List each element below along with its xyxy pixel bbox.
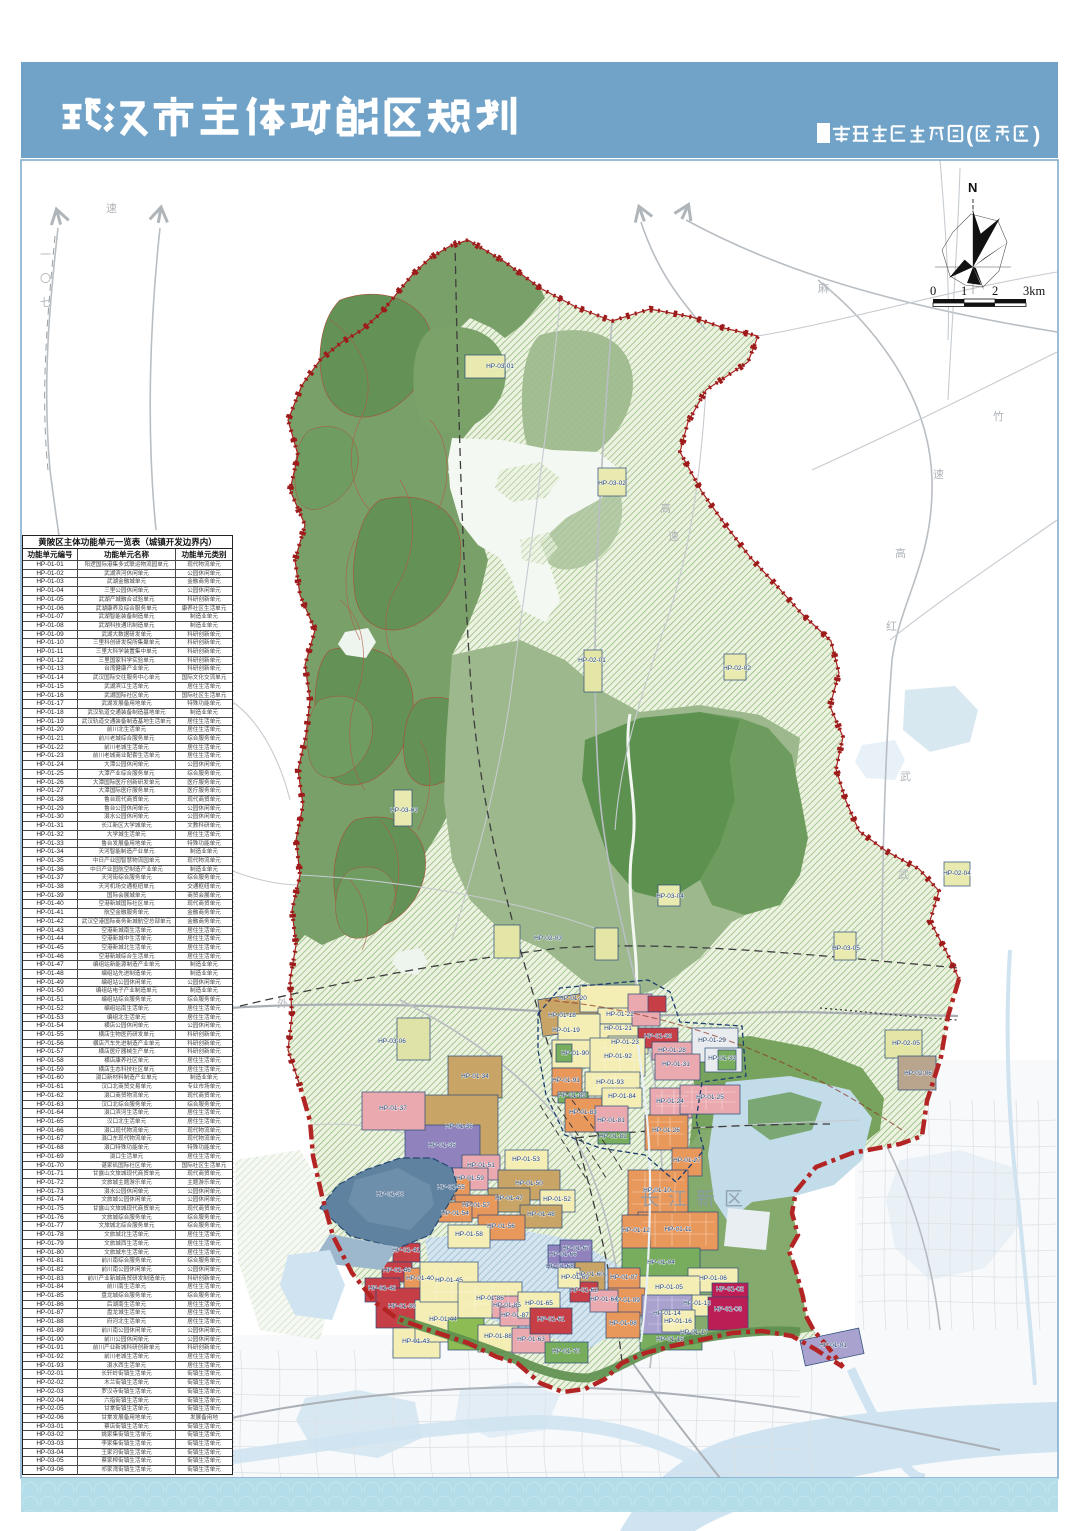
svg-text:HP-03-06: HP-03-06	[378, 1038, 406, 1045]
svg-text:〇: 〇	[40, 272, 51, 285]
svg-text:HP-01-15: HP-01-15	[656, 1336, 684, 1343]
svg-text:HP-01-41: HP-01-41	[392, 1247, 420, 1254]
svg-text:高: 高	[895, 546, 906, 560]
svg-text:HP-01-25: HP-01-25	[696, 1094, 724, 1101]
svg-text:HP-01-06: HP-01-06	[699, 1275, 727, 1282]
svg-text:HP-01-83: HP-01-83	[569, 1109, 597, 1116]
svg-text:HP-01-93: HP-01-93	[596, 1079, 624, 1086]
svg-text:HP-01-24: HP-01-24	[656, 1098, 684, 1105]
svg-text:HP-01-34: HP-01-34	[461, 1073, 489, 1080]
svg-text:HP-01-61: HP-01-61	[537, 1316, 565, 1323]
svg-text:HP-01-63: HP-01-63	[517, 1336, 545, 1343]
svg-text:速: 速	[106, 202, 117, 215]
svg-text:竹: 竹	[993, 409, 1004, 423]
svg-text:2: 2	[992, 284, 998, 298]
svg-text:HP-01-56: HP-01-56	[487, 1223, 515, 1230]
svg-text:HP-01-66: HP-01-66	[549, 1251, 577, 1258]
svg-text:HP-01-01: HP-01-01	[819, 1342, 847, 1349]
svg-text:HP-01-04: HP-01-04	[647, 1259, 675, 1266]
svg-text:HP-01-37: HP-01-37	[379, 1105, 407, 1112]
svg-text:HP-03-01: HP-03-01	[486, 363, 514, 370]
svg-text:HP-01-18: HP-01-18	[548, 1012, 576, 1019]
svg-text:HP-02-06: HP-02-06	[904, 1070, 932, 1077]
svg-text:1: 1	[961, 284, 967, 298]
svg-text:HP-02-04: HP-02-04	[943, 870, 971, 877]
svg-text:HP-01-35: HP-01-35	[428, 1142, 456, 1149]
svg-text:HP-01-54: HP-01-54	[441, 1210, 469, 1217]
svg-text:HP-01-26: HP-01-26	[652, 1127, 680, 1134]
svg-text:HP-01-68: HP-01-68	[546, 1263, 574, 1270]
svg-text:HP-01-14: HP-01-14	[653, 1310, 681, 1317]
svg-text:HP-01-03: HP-01-03	[714, 1306, 742, 1313]
svg-text:HP-01-16: HP-01-16	[664, 1318, 692, 1325]
svg-text:HP-01-52: HP-01-52	[543, 1196, 571, 1203]
svg-text:HP-01-29: HP-01-29	[698, 1037, 726, 1044]
svg-text:HP-01-33: HP-01-33	[708, 1055, 736, 1062]
svg-text:HP-03-02: HP-03-02	[598, 480, 626, 487]
svg-text:HP-01-30: HP-01-30	[644, 1033, 672, 1040]
svg-text:武: 武	[900, 770, 911, 783]
svg-text:麻: 麻	[818, 281, 829, 295]
svg-text:HP-01-10: HP-01-10	[643, 1187, 671, 1194]
svg-text:HP-01-51: HP-01-51	[467, 1162, 495, 1169]
svg-text:HP-01-23: HP-01-23	[611, 1039, 639, 1046]
svg-text:HP-01-88: HP-01-88	[484, 1333, 512, 1340]
svg-text:HP-01-20: HP-01-20	[559, 995, 587, 1002]
svg-text:HP-01-67: HP-01-67	[562, 1245, 590, 1252]
svg-text:HP-01-60: HP-01-60	[576, 1271, 604, 1278]
svg-text:HP-01-40: HP-01-40	[406, 1275, 434, 1282]
svg-text:七: 七	[40, 296, 51, 309]
svg-text:HP-01-50: HP-01-50	[515, 1180, 543, 1187]
svg-text:HP-01-28: HP-01-28	[658, 1047, 686, 1054]
svg-text:HP-01-81: HP-01-81	[597, 1117, 625, 1124]
svg-text:HP-01-85: HP-01-85	[493, 1302, 521, 1309]
svg-text:HP-01-44: HP-01-44	[429, 1316, 457, 1323]
svg-text:HP-01-89: HP-01-89	[558, 1092, 586, 1099]
svg-text:HP-01-45: HP-01-45	[435, 1277, 463, 1284]
svg-text:HP-01-91: HP-01-91	[552, 1077, 580, 1084]
svg-text:HP-01-59: HP-01-59	[456, 1175, 484, 1182]
svg-text:HP-01-57: HP-01-57	[462, 1202, 490, 1209]
svg-text:HP-01-36: HP-01-36	[445, 1123, 473, 1130]
svg-text:HP-01-39: HP-01-39	[388, 1303, 416, 1310]
svg-text:HP-01-08: HP-01-08	[609, 1320, 637, 1327]
svg-text:HP-01-65: HP-01-65	[525, 1300, 553, 1307]
svg-text:外: 外	[277, 997, 288, 1010]
svg-text:HP-01-27: HP-01-27	[673, 1157, 701, 1164]
svg-text:HP-01-31: HP-01-31	[662, 1061, 690, 1068]
svg-text:N: N	[968, 180, 977, 195]
svg-text:HP-01-19: HP-01-19	[552, 1027, 580, 1034]
svg-text:HP-01-47: HP-01-47	[495, 1195, 523, 1202]
svg-text:HP-01-38: HP-01-38	[376, 1191, 404, 1198]
svg-text:): )	[1033, 122, 1040, 147]
svg-text:HP-01-02: HP-01-02	[716, 1286, 744, 1293]
svg-text:HP-02-03: HP-02-03	[534, 935, 562, 942]
svg-text:HP-01-92: HP-01-92	[604, 1053, 632, 1060]
svg-text:HP-01-11: HP-01-11	[664, 1226, 692, 1233]
svg-text:HP-01-90: HP-01-90	[561, 1050, 589, 1057]
svg-text:HP-01-48: HP-01-48	[527, 1211, 555, 1218]
svg-text:高: 高	[660, 501, 671, 515]
svg-text:HP-01-62: HP-01-62	[570, 1287, 598, 1294]
svg-text:HP-02-05: HP-02-05	[892, 1040, 920, 1047]
svg-text:(: (	[966, 122, 974, 147]
svg-text:HP-02-02: HP-02-02	[723, 665, 751, 672]
svg-text:HP-01-22: HP-01-22	[606, 1011, 634, 1018]
svg-text:HP-01-70: HP-01-70	[552, 1348, 580, 1355]
svg-text:HP-03-04: HP-03-04	[656, 893, 684, 900]
svg-text:HP-01-55: HP-01-55	[437, 1184, 465, 1191]
svg-text:HP-01-21: HP-01-21	[604, 1025, 632, 1032]
svg-text:HP-03-03: HP-03-03	[390, 807, 418, 814]
svg-text:HP-01-87: HP-01-87	[501, 1312, 529, 1319]
svg-text:HP-01-58: HP-01-58	[455, 1231, 483, 1238]
svg-text:HP-01-13: HP-01-13	[683, 1300, 711, 1307]
svg-text:HP-01-05: HP-01-05	[655, 1284, 683, 1291]
svg-text:HP-01-43: HP-01-43	[402, 1338, 430, 1345]
svg-text:HP-01-64: HP-01-64	[590, 1296, 618, 1303]
svg-text:3km: 3km	[1023, 284, 1046, 298]
svg-text:HP-01-12: HP-01-12	[622, 1227, 650, 1234]
svg-text:HP-01-53: HP-01-53	[512, 1156, 540, 1163]
svg-text:HP-01-17: HP-01-17	[680, 1329, 708, 1336]
svg-text:一: 一	[40, 249, 51, 261]
svg-text:速: 速	[668, 530, 679, 543]
svg-text:武: 武	[898, 868, 909, 881]
svg-text:HP-01-46: HP-01-46	[383, 1267, 411, 1274]
svg-text:HP-01-84: HP-01-84	[608, 1093, 636, 1100]
svg-text:红: 红	[886, 620, 897, 633]
svg-text:HP-02-01: HP-02-01	[578, 657, 606, 664]
svg-text:0: 0	[930, 284, 936, 298]
svg-text:HP-01-42: HP-01-42	[368, 1285, 396, 1292]
svg-text:HP-01-86: HP-01-86	[476, 1295, 504, 1302]
svg-text:速: 速	[933, 468, 944, 481]
svg-text:HP-03-05: HP-03-05	[832, 945, 860, 952]
svg-text:HP-01-82: HP-01-82	[599, 1133, 627, 1140]
svg-text:HP-01-07: HP-01-07	[610, 1274, 638, 1281]
